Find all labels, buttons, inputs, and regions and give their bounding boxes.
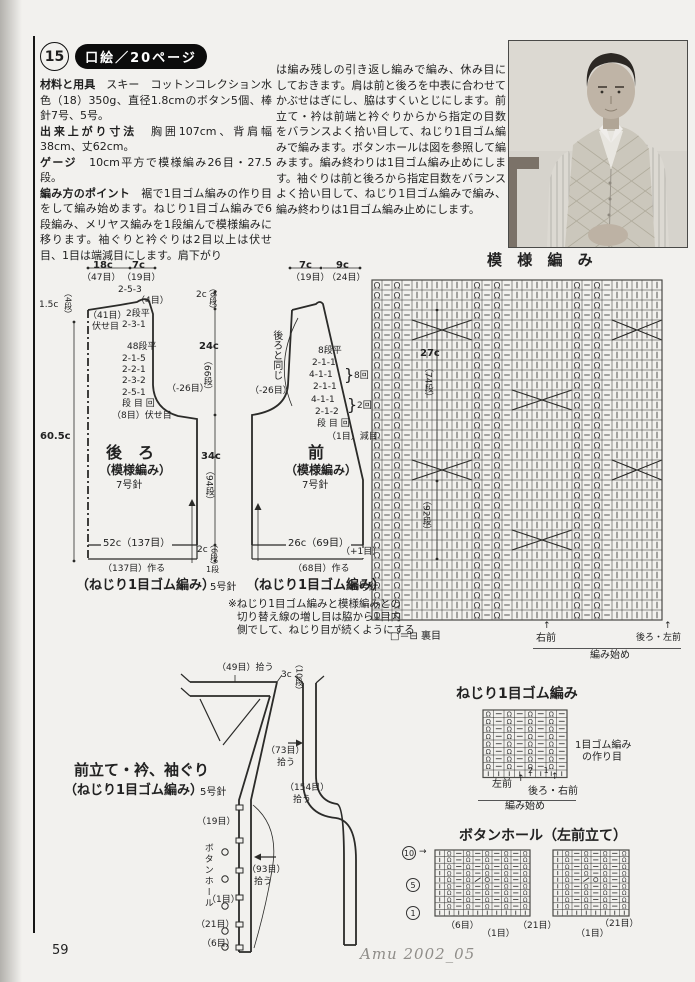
- band-pick154: （154目）: [285, 784, 329, 794]
- svg-text:Ω: Ω: [447, 903, 452, 910]
- svg-text:Ω: Ω: [603, 903, 608, 910]
- back-neck-sts: （19目）: [122, 274, 160, 284]
- back-armhole-4: 2-5-1: [122, 389, 146, 399]
- band-pick93-b: 拾う: [254, 878, 272, 888]
- front-dec-note: （1目）減目: [327, 433, 378, 443]
- bh-row1: 1: [410, 909, 415, 918]
- bh-chart-title: ボタンホール（左前立て）: [459, 829, 627, 844]
- back-flat: 2段平: [126, 310, 150, 320]
- front-vneck-6: 段 目 回: [317, 420, 350, 430]
- band-pick93: （93目）: [247, 866, 285, 876]
- pattern-chart-grid: ΩΩΩΩΩΩΩΩΩΩΩΩΩΩΩΩΩΩΩΩΩΩΩΩΩΩΩΩΩΩΩΩΩΩΩΩΩΩΩΩ…: [372, 280, 662, 620]
- materials-label: 材料と用具: [40, 78, 95, 91]
- band-pick73: （73目）: [266, 747, 304, 757]
- bh-chart-grid-right: ΩΩΩΩΩΩΩΩΩΩΩΩΩΩΩΩΩΩΩΩΩΩΩΩΩΩΩΩΩΩΩΩΩΩΩ: [553, 850, 629, 916]
- dim-1r: 1段: [206, 566, 219, 575]
- rib-back-right: 後ろ・右前: [528, 787, 578, 798]
- front-rep2: 2回: [357, 402, 372, 412]
- bh-row1-circle: 1: [406, 906, 420, 920]
- item-number-circle: 15: [40, 42, 69, 71]
- rib-start-label: 編み始め: [505, 802, 545, 813]
- back-armhole-2: 2-2-1: [122, 366, 146, 376]
- back-neck-dec-sts: （4目）: [136, 297, 169, 307]
- band-s6: （6目）: [202, 940, 235, 950]
- band-title: 前立て・衿、袖ぐり: [74, 762, 209, 778]
- back-hem: 52c（137目）: [101, 539, 172, 550]
- front-neck: 9c: [336, 261, 349, 272]
- back-armhole-0: 48段平: [127, 343, 156, 353]
- dim-2c-hem: 2c: [197, 546, 208, 556]
- dim-34c: 34c: [201, 452, 221, 463]
- rib-chart-grid: ΩΩΩΩΩΩΩΩΩΩΩΩΩΩΩΩΩΩΩΩΩΩΩΩΩΩΩΩΩΩΩΩ: [483, 710, 567, 778]
- purl-legend: □＝⊟ 裏目: [390, 632, 441, 643]
- size-label: 出来上がり寸法: [40, 125, 137, 138]
- bh-chart-grid-left: ΩΩΩΩΩΩΩΩΩΩΩΩΩΩΩΩΩΩΩΩΩΩΩΩΩΩΩΩΩΩΩΩΩΩΩΩΩΩΩΩ…: [435, 850, 530, 916]
- band-pick-neck: （49目）拾う: [217, 664, 273, 674]
- front-title: 前: [308, 444, 324, 461]
- front-vneck-5: 2-1-2: [315, 408, 339, 418]
- band-subtitle: （ねじり1目ゴム編み）: [64, 784, 203, 798]
- back-needle: 7号針: [116, 481, 142, 492]
- band-pick154-b: 拾う: [293, 796, 311, 806]
- front-brace-2: }: [347, 396, 357, 413]
- header-title: 口絵／20ページ: [85, 47, 197, 66]
- rib-col-nums: 2 1: [528, 767, 553, 776]
- back-rib-label: （ねじり1目ゴム編み）: [76, 579, 215, 593]
- bh-row10-circle: 10: [402, 846, 416, 860]
- band-s21: （21目）: [196, 921, 234, 931]
- gauge-paragraph: ゲージ 10cm平方で模様編み26目・27.5段。: [40, 155, 272, 186]
- dim-24c: 24c: [199, 342, 219, 353]
- back-armhole-5: 段 目 回: [122, 400, 155, 410]
- bh-l21b: （21目）: [600, 920, 638, 930]
- front-vneck-4: 4-1-1: [311, 396, 335, 406]
- svg-text:Ω: Ω: [507, 763, 512, 771]
- model-photo-illustration: [509, 41, 687, 247]
- magazine-page: 15 口絵／20ページ 材料と用具 スキー コットンコレクション水色（18）35…: [0, 0, 695, 982]
- back-rib-needle: 5号針: [210, 583, 236, 594]
- back-subtitle: （模様編み）: [99, 464, 171, 477]
- back-shoulder-rows: （4段）: [63, 289, 72, 318]
- model-photo: [508, 40, 688, 248]
- svg-text:Ω: Ω: [584, 870, 589, 877]
- header-badge: 口絵／20ページ: [75, 44, 207, 69]
- rib-back-right-arrow: ↑: [551, 773, 559, 783]
- back-bindoff: 伏せ目: [92, 323, 119, 333]
- front-vneck-3: 2-1-1: [313, 383, 337, 393]
- continued-text: は編み残しの引き返し編みで編み、休み目にしておきます。肩は前と後ろを中表に合わせ…: [276, 62, 506, 217]
- front-vneck-0: 8段平: [318, 347, 342, 357]
- dim-2c-top: 2c: [196, 291, 207, 301]
- bh-row10: 10: [404, 849, 414, 858]
- svg-text:Ω: Ω: [485, 870, 490, 877]
- pattern-chart-title: 模 様 編 み: [487, 252, 598, 268]
- band-s19: （19目）: [197, 818, 235, 828]
- band-diagram: [140, 655, 375, 960]
- bh-l1b: （1目）: [576, 930, 609, 940]
- svg-text:Ω: Ω: [485, 903, 490, 910]
- rib-left-front-arrow: ↑: [517, 775, 525, 785]
- intro-left-column: 材料と用具 スキー コットンコレクション水色（18）350g、直径1.8cmのボ…: [40, 77, 272, 263]
- rib-left-front: 左前: [492, 780, 512, 791]
- bh-l1a: （1目）: [482, 930, 515, 940]
- svg-text:Ω: Ω: [486, 763, 491, 771]
- band-10r: （10段）: [294, 660, 303, 694]
- svg-text:Ω: Ω: [504, 903, 509, 910]
- band-3c: 3c: [281, 671, 292, 681]
- back-length: 60.5c: [40, 432, 71, 443]
- dim-94r: （94段）: [203, 466, 213, 504]
- front-shoulder: 7c: [299, 261, 312, 272]
- bh-l21a: （21目）: [518, 922, 556, 932]
- bh-row5-circle: 5: [406, 878, 420, 892]
- bh-l6: （6目）: [446, 922, 479, 932]
- back-left-label: 後ろ・左前: [636, 634, 681, 644]
- back-armhole-1: 2-1-5: [122, 355, 146, 365]
- front-subtitle: （模様編み）: [285, 464, 357, 477]
- materials-paragraph: 材料と用具 スキー コットンコレクション水色（18）350g、直径1.8cmのボ…: [40, 77, 272, 124]
- front-cast-on: （68目）作る: [293, 565, 349, 575]
- page-number: 59: [52, 944, 69, 958]
- dim-66r: （66段）: [201, 356, 211, 394]
- back-title: 後 ろ: [106, 444, 154, 461]
- points-paragraph: 編み方のポイント 裾で1目ゴム編みの作り目をして編み始めます。ねじり1目ゴム編み…: [40, 186, 272, 264]
- svg-text:Ω: Ω: [622, 903, 627, 910]
- back-left-arrow: ↑: [664, 622, 672, 632]
- front-brace-8: }: [344, 366, 354, 383]
- front-same-as-back: 後ろと同じ: [270, 330, 281, 380]
- front-vneck-2: 4-1-1: [309, 371, 333, 381]
- svg-text:Ω: Ω: [466, 903, 471, 910]
- points-label: 編み方のポイント: [40, 187, 130, 200]
- bh-row5: 5: [410, 881, 415, 890]
- back-shoulder-drop: 1.5c: [39, 301, 58, 311]
- right-front-arrow: ↑: [543, 622, 551, 632]
- back-top-width-sts: （47目）: [82, 274, 120, 284]
- back-cast-on: （137目）作る: [103, 565, 165, 575]
- rib-cast-label-2: の作り目: [582, 753, 622, 764]
- front-armhole-total: （-26目）: [250, 387, 292, 397]
- left-vertical-rule: [33, 36, 35, 933]
- svg-text:Ω: Ω: [584, 903, 589, 910]
- right-front-label: 右前: [536, 634, 556, 645]
- magazine-credit: Amu 2002_05: [360, 946, 475, 962]
- dim-6r-top: （6段）: [208, 284, 217, 313]
- front-vneck-1: 2-1-1: [312, 359, 336, 369]
- back-neck-width: 7c: [132, 261, 145, 272]
- back-armhole-6: （8目）伏せ目: [112, 412, 172, 422]
- front-needle: 7号針: [302, 481, 328, 492]
- front-shoulder-sts: （19目）: [291, 274, 329, 284]
- back-top-width: 18c: [93, 261, 113, 272]
- band-s1: （1目）: [207, 896, 240, 906]
- rib-chart-title: ねじり1目ゴム編み: [456, 687, 578, 702]
- intro-right-column: は編み残しの引き返し編みで編み、休み目にしておきます。肩は前と後ろを中表に合わせ…: [276, 62, 506, 217]
- svg-text:Ω: Ω: [565, 903, 570, 910]
- back-neck-dec: 2-5-3: [118, 286, 142, 296]
- back-bindoff-sts: （41目）: [88, 312, 126, 322]
- front-note-3: 側でして、ねじり目が続くようにする: [237, 625, 415, 636]
- bh-row10-arrow: →: [419, 848, 427, 858]
- band-needle: 5号針: [200, 788, 226, 799]
- gauge-label: ゲージ: [40, 156, 77, 169]
- band-pick73-b: 拾う: [277, 759, 295, 769]
- item-number: 15: [45, 49, 64, 65]
- scan-gutter-shadow: [0, 0, 22, 982]
- back-armhole-3: 2-3-2: [122, 377, 146, 387]
- front-neck-sts: （24目）: [327, 274, 365, 284]
- back-dec: 2-3-1: [122, 321, 146, 331]
- size-paragraph: 出来上がり寸法 胸囲107cm、背肩幅38cm、丈62cm。: [40, 124, 272, 155]
- front-rep8: 8回: [354, 372, 369, 382]
- pattern-start-label: 編み始め: [590, 651, 630, 662]
- start-underline: [533, 648, 681, 649]
- svg-text:Ω: Ω: [523, 903, 528, 910]
- rib-cast-label-1: 1目ゴム編み: [575, 741, 631, 752]
